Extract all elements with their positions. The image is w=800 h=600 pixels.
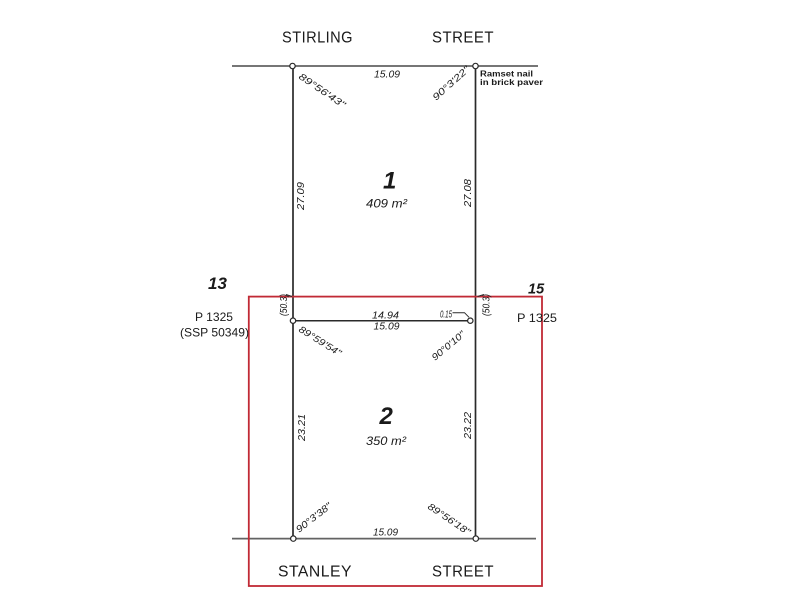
svg-text:1: 1 <box>383 168 396 195</box>
svg-text:STIRLING: STIRLING <box>282 30 353 47</box>
svg-text:(50.3): (50.3) <box>482 294 493 316</box>
svg-text:27.09: 27.09 <box>296 182 307 212</box>
svg-text:23.21: 23.21 <box>297 414 308 442</box>
svg-text:STREET: STREET <box>432 30 494 47</box>
svg-text:15: 15 <box>528 282 545 298</box>
svg-text:0.15: 0.15 <box>440 309 452 320</box>
svg-text:in brick paver: in brick paver <box>480 78 543 87</box>
svg-text:15.09: 15.09 <box>374 322 400 333</box>
svg-text:(SSP 50349): (SSP 50349) <box>180 326 249 340</box>
svg-text:23.22: 23.22 <box>463 412 474 441</box>
svg-text:15.09: 15.09 <box>374 70 400 81</box>
svg-text:STREET: STREET <box>432 564 494 581</box>
svg-text:14.94: 14.94 <box>372 310 399 321</box>
svg-text:STANLEY: STANLEY <box>278 564 352 581</box>
svg-text:P 1325: P 1325 <box>195 310 233 324</box>
svg-text:15.09: 15.09 <box>373 528 398 539</box>
svg-text:13: 13 <box>208 274 227 293</box>
svg-text:350 m²: 350 m² <box>366 434 407 448</box>
svg-text:P 1325: P 1325 <box>517 311 557 325</box>
svg-text:409 m²: 409 m² <box>366 197 408 211</box>
svg-text:(50.3): (50.3) <box>279 294 290 316</box>
svg-text:27.08: 27.08 <box>463 179 474 209</box>
svg-text:2: 2 <box>379 403 394 430</box>
